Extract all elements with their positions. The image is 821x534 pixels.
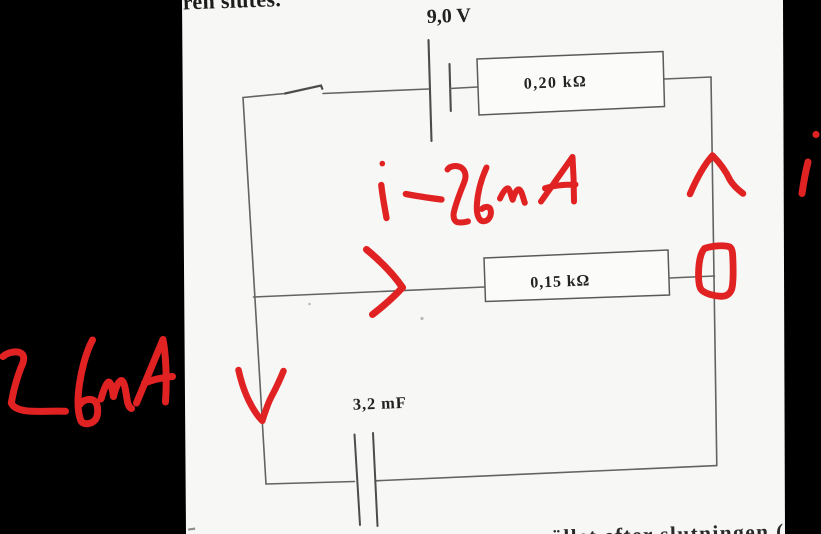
svg-text:3,2 mF: 3,2 mF <box>352 393 406 414</box>
svg-text:9,0 V: 9,0 V <box>426 4 471 28</box>
svg-text:0,20 kΩ: 0,20 kΩ <box>524 73 587 92</box>
svg-text:0,15 kΩ: 0,15 kΩ <box>530 272 590 291</box>
